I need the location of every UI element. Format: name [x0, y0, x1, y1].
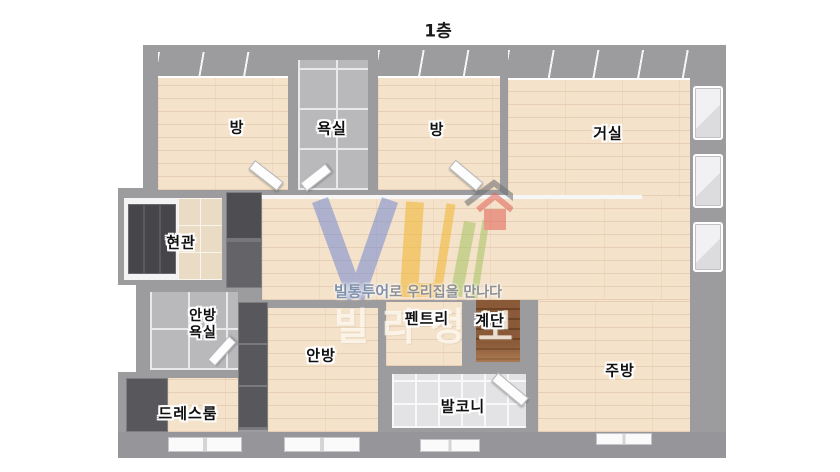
living-room-window-1	[693, 86, 723, 140]
label-room2: 방	[430, 119, 445, 140]
shoe-cabinet	[226, 192, 262, 288]
floorplan-canvas: 1층	[0, 0, 840, 472]
label-bathroom: 욕실	[317, 118, 347, 139]
label-master-bathroom-line1: 안방	[189, 308, 217, 325]
label-living-room: 거실	[593, 123, 623, 144]
living-room-window-3	[693, 222, 723, 272]
label-pantry: 펜트리	[405, 308, 449, 329]
label-dress-room: 드레스룸	[158, 403, 217, 424]
label-master-bathroom: 안방 욕실	[189, 308, 217, 342]
master-bath-left-wall	[136, 285, 150, 375]
label-master-bedroom: 안방	[306, 345, 336, 366]
kitchen-window-sill	[596, 433, 652, 445]
label-balcony: 발코니	[441, 396, 485, 417]
logo-house-icon	[478, 196, 512, 210]
floor-title: 1층	[424, 17, 451, 42]
dress-room-window-sill	[168, 437, 242, 452]
room1-ceiling-trim	[158, 52, 288, 78]
label-room1: 방	[230, 117, 245, 138]
living-room-window-trim	[508, 50, 690, 80]
label-master-bathroom-line2: 욕실	[189, 325, 217, 342]
label-entrance: 현관	[166, 232, 196, 253]
balcony-window-sill	[420, 439, 480, 452]
label-kitchen: 주방	[605, 360, 635, 381]
master-bedroom-wardrobe	[238, 302, 268, 430]
label-stairs: 계단	[475, 310, 505, 331]
living-room-window-2	[693, 154, 723, 208]
master-bedroom-window-sill	[284, 437, 360, 452]
room2-ceiling-trim	[378, 50, 500, 78]
